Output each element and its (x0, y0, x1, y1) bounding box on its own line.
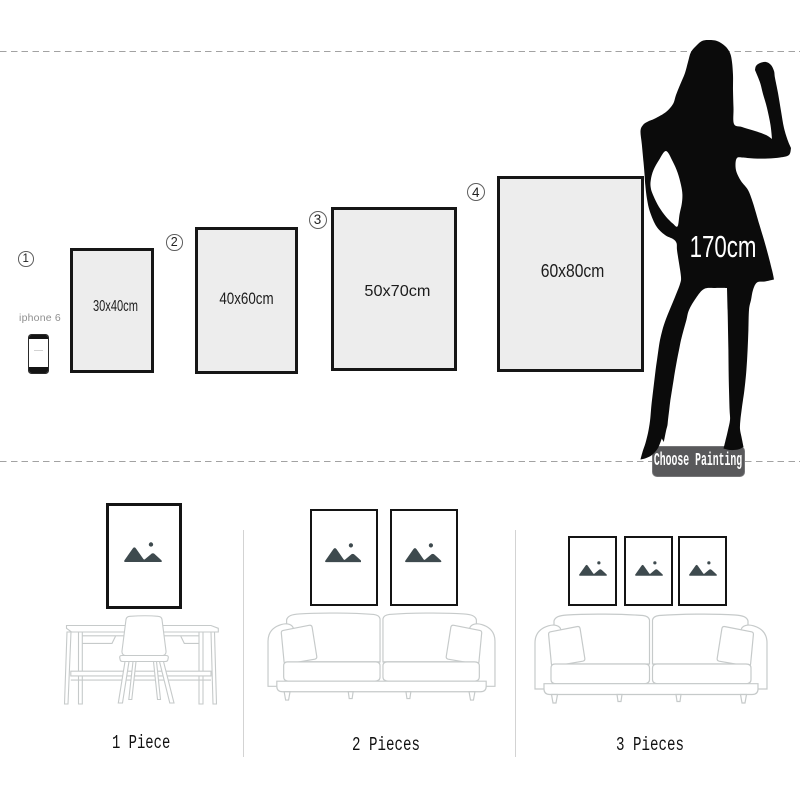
svg-text:170cm: 170cm (690, 230, 757, 264)
